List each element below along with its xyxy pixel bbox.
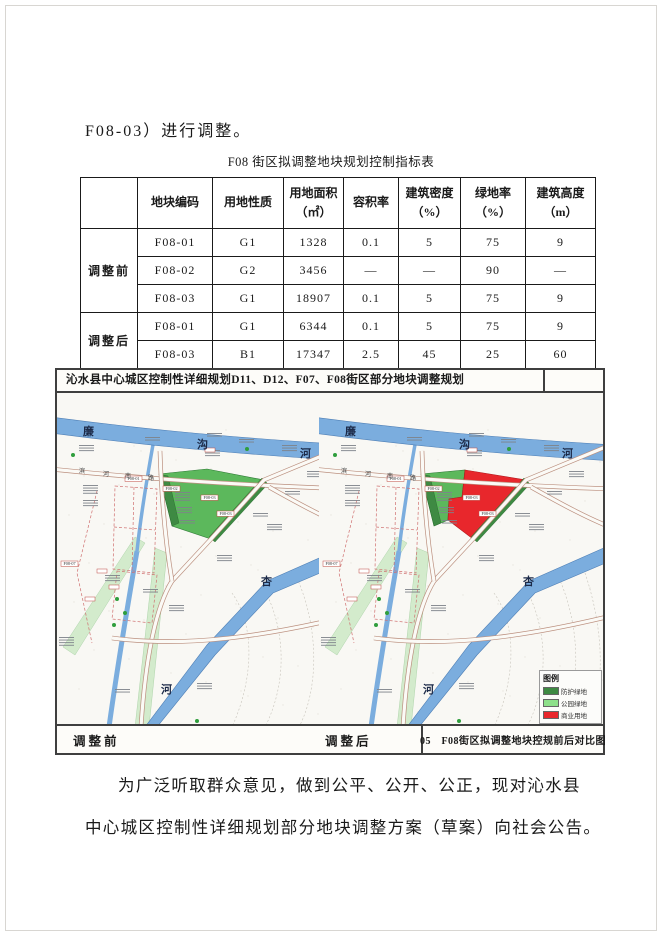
parcel-tag-label: F08-03 [465, 495, 477, 500]
river-name-char: 河 [300, 446, 311, 460]
tree-symbol [374, 623, 378, 627]
road-name-char: 路 [410, 474, 416, 482]
river-name-char: 河 [562, 446, 573, 460]
legend-swatch [543, 687, 559, 695]
table-cell: 0.1 [344, 285, 399, 313]
table-cell: 90 [461, 257, 526, 285]
table-cell: 60 [526, 341, 596, 369]
table-cell: 17347 [284, 341, 344, 369]
tree-symbol [71, 453, 75, 457]
table-body: 调整前F08-01G113280.15759F08-02G23456——90—F… [81, 229, 596, 369]
table-header-cell: 建筑高度 （m） [526, 178, 596, 229]
parcel-tag-label: F08-03 [481, 511, 493, 516]
parcel-tag-label: F08-07 [63, 561, 75, 566]
road-name-char: 河 [103, 470, 109, 478]
river-name-char: 杏 [522, 574, 535, 588]
table-cell: 6344 [284, 313, 344, 341]
table-cell: G1 [213, 229, 284, 257]
table-cell: 25 [461, 341, 526, 369]
map-panel-title: 沁水县中心城区控制性详细规划D11、D12、F07、F08街区部分地块调整规划 [57, 370, 543, 391]
table-header-cell: 建筑密度 （%） [399, 178, 461, 229]
closing-paragraph: 为广泛听取群众意见，做到公平、公开、公正，现对沁水县 中心城区控制性详细规划部分… [85, 765, 599, 849]
table-cell: — [399, 257, 461, 285]
legend-item: 防护绿地 [543, 686, 598, 696]
legend-swatch [543, 699, 559, 707]
parcel-tag [371, 585, 381, 589]
table-cell: 0.1 [344, 229, 399, 257]
river-name-char: 杏 [260, 574, 273, 588]
parcel-tag [109, 585, 119, 589]
tree-symbol [123, 611, 127, 615]
table-cell: 5 [399, 229, 461, 257]
map-panel-bottom-bar: 调整前 调整后 05 F08街区拟调整地块控规前后对比图 [57, 724, 603, 753]
table-cell: G1 [213, 285, 284, 313]
table-header-cell: 地块编码 [138, 178, 213, 229]
river-name-char: 河 [161, 682, 172, 696]
table-cell: B1 [213, 341, 284, 369]
legend-swatch [543, 711, 559, 719]
tree-symbol [245, 447, 249, 451]
map-panel-title-bar: 沁水县中心城区控制性详细规划D11、D12、F07、F08街区部分地块调整规划 [57, 370, 603, 393]
table-row: F08-02G23456——90— [81, 257, 596, 285]
table-cell: G1 [213, 313, 284, 341]
legend-item: 商业用地 [543, 710, 598, 720]
table-cell: 0.1 [344, 313, 399, 341]
table-cell: F08-01 [138, 313, 213, 341]
table-cell: F08-03 [138, 285, 213, 313]
table-row: 调整前F08-01G113280.15759 [81, 229, 596, 257]
table-cell: 75 [461, 229, 526, 257]
road-name-char: 滨 [79, 467, 85, 475]
table-row: F08-03G1189070.15759 [81, 285, 596, 313]
road-name-char: 河 [365, 470, 371, 478]
legend-label: 商业用地 [561, 710, 587, 720]
heading: F08-03）进行调整。 [85, 117, 251, 141]
table-header-row: 地块编码用地性质用地面积 （㎡）容积率建筑密度 （%）绿地率 （%）建筑高度 （… [81, 178, 596, 229]
river-name-char: 河 [423, 682, 434, 696]
table-header-cell: 容积率 [344, 178, 399, 229]
legend-items: 防护绿地公园绿地商业用地 [543, 686, 598, 720]
legend-label: 防护绿地 [561, 686, 587, 696]
table-cell: 9 [526, 285, 596, 313]
tree-symbol [457, 719, 461, 723]
table-header-cell [81, 178, 138, 229]
table-header-cell: 用地面积 （㎡） [284, 178, 344, 229]
table-cell: 9 [526, 313, 596, 341]
parcel-tag-label: F08-03 [203, 495, 215, 500]
table-cell: F08-03 [138, 341, 213, 369]
label-before-adjustment: 调整前 [73, 730, 120, 749]
table-cell: 75 [461, 285, 526, 313]
road-name-char: 路 [148, 474, 154, 482]
river-name-char: 廉 [83, 424, 94, 438]
group-label-cell: 调整后 [81, 313, 138, 369]
table-row: F08-03B1173472.5452560 [81, 341, 596, 369]
table-cell: 2.5 [344, 341, 399, 369]
legend-title: 图例 [543, 673, 598, 684]
table-cell: F08-01 [138, 229, 213, 257]
legend-label: 公园绿地 [561, 698, 587, 708]
closing-line-1: 为广泛听取群众意见，做到公平、公开、公正，现对沁水县 [85, 765, 599, 807]
table-cell: 5 [399, 313, 461, 341]
parcel-tag-label: F08-02 [427, 486, 439, 491]
table-cell: 1328 [284, 229, 344, 257]
table-cell: 18907 [284, 285, 344, 313]
parcel-tag-label: F08-02 [165, 486, 177, 491]
tree-symbol [112, 623, 116, 627]
river-name-char: 沟 [459, 437, 470, 451]
group-label-cell: 调整前 [81, 229, 138, 313]
table-cell: 5 [399, 285, 461, 313]
table-title: F08 街区拟调整地块规划控制指标表 [0, 151, 662, 170]
maps-area: F08-01F08-02F08-03F08-03F08-07廉沟河滨河南路杏河 … [57, 393, 603, 724]
plot-indicator-table: 地块编码用地性质用地面积 （㎡）容积率建筑密度 （%）绿地率 （%）建筑高度 （… [80, 177, 596, 369]
road-name-char: 滨 [341, 467, 347, 475]
table-cell: — [344, 257, 399, 285]
map-caption-box: 05 F08街区拟调整地块控规前后对比图 [421, 726, 603, 753]
closing-line-2: 中心城区控制性详细规划部分地块调整方案（草案）向社会公告。 [85, 807, 599, 849]
table-cell: — [526, 257, 596, 285]
tree-symbol [377, 597, 381, 601]
table-header-cell: 用地性质 [213, 178, 284, 229]
table-header-cell: 绿地率 （%） [461, 178, 526, 229]
document-page: F08-03）进行调整。 F08 街区拟调整地块规划控制指标表 地块编码用地性质… [0, 0, 662, 936]
comparison-map-panel: 沁水县中心城区控制性详细规划D11、D12、F07、F08街区部分地块调整规划 … [55, 368, 605, 755]
map-legend: 图例 防护绿地公园绿地商业用地 [539, 670, 602, 724]
table-cell: F08-02 [138, 257, 213, 285]
parcel-tag [97, 569, 107, 573]
tree-symbol [115, 597, 119, 601]
road-name-char: 南 [125, 472, 131, 480]
parcel-tag-label: F08-03 [219, 511, 231, 516]
road-name-char: 南 [387, 472, 393, 480]
map-before-adjustment: F08-01F08-02F08-03F08-03F08-07廉沟河滨河南路杏河 [57, 393, 319, 724]
map-caption: 05 F08街区拟调整地块控规前后对比图 [420, 732, 606, 747]
table-cell: 9 [526, 229, 596, 257]
parcel-tag [359, 569, 369, 573]
table-row: 调整后F08-01G163440.15759 [81, 313, 596, 341]
table-cell: 45 [399, 341, 461, 369]
tree-symbol [333, 453, 337, 457]
table-cell: 3456 [284, 257, 344, 285]
river-name-char: 廉 [345, 424, 356, 438]
tree-symbol [385, 611, 389, 615]
parcel-tag-label: F08-07 [325, 561, 337, 566]
parcel-tag [85, 597, 95, 601]
tree-symbol [195, 719, 199, 723]
parcel-tag [347, 597, 357, 601]
table-cell: G2 [213, 257, 284, 285]
river-name-char: 沟 [197, 437, 208, 451]
table-cell: 75 [461, 313, 526, 341]
legend-item: 公园绿地 [543, 698, 598, 708]
label-after-adjustment: 调整后 [325, 730, 372, 749]
tree-symbol [507, 447, 511, 451]
map-panel-title-corner [543, 370, 603, 391]
